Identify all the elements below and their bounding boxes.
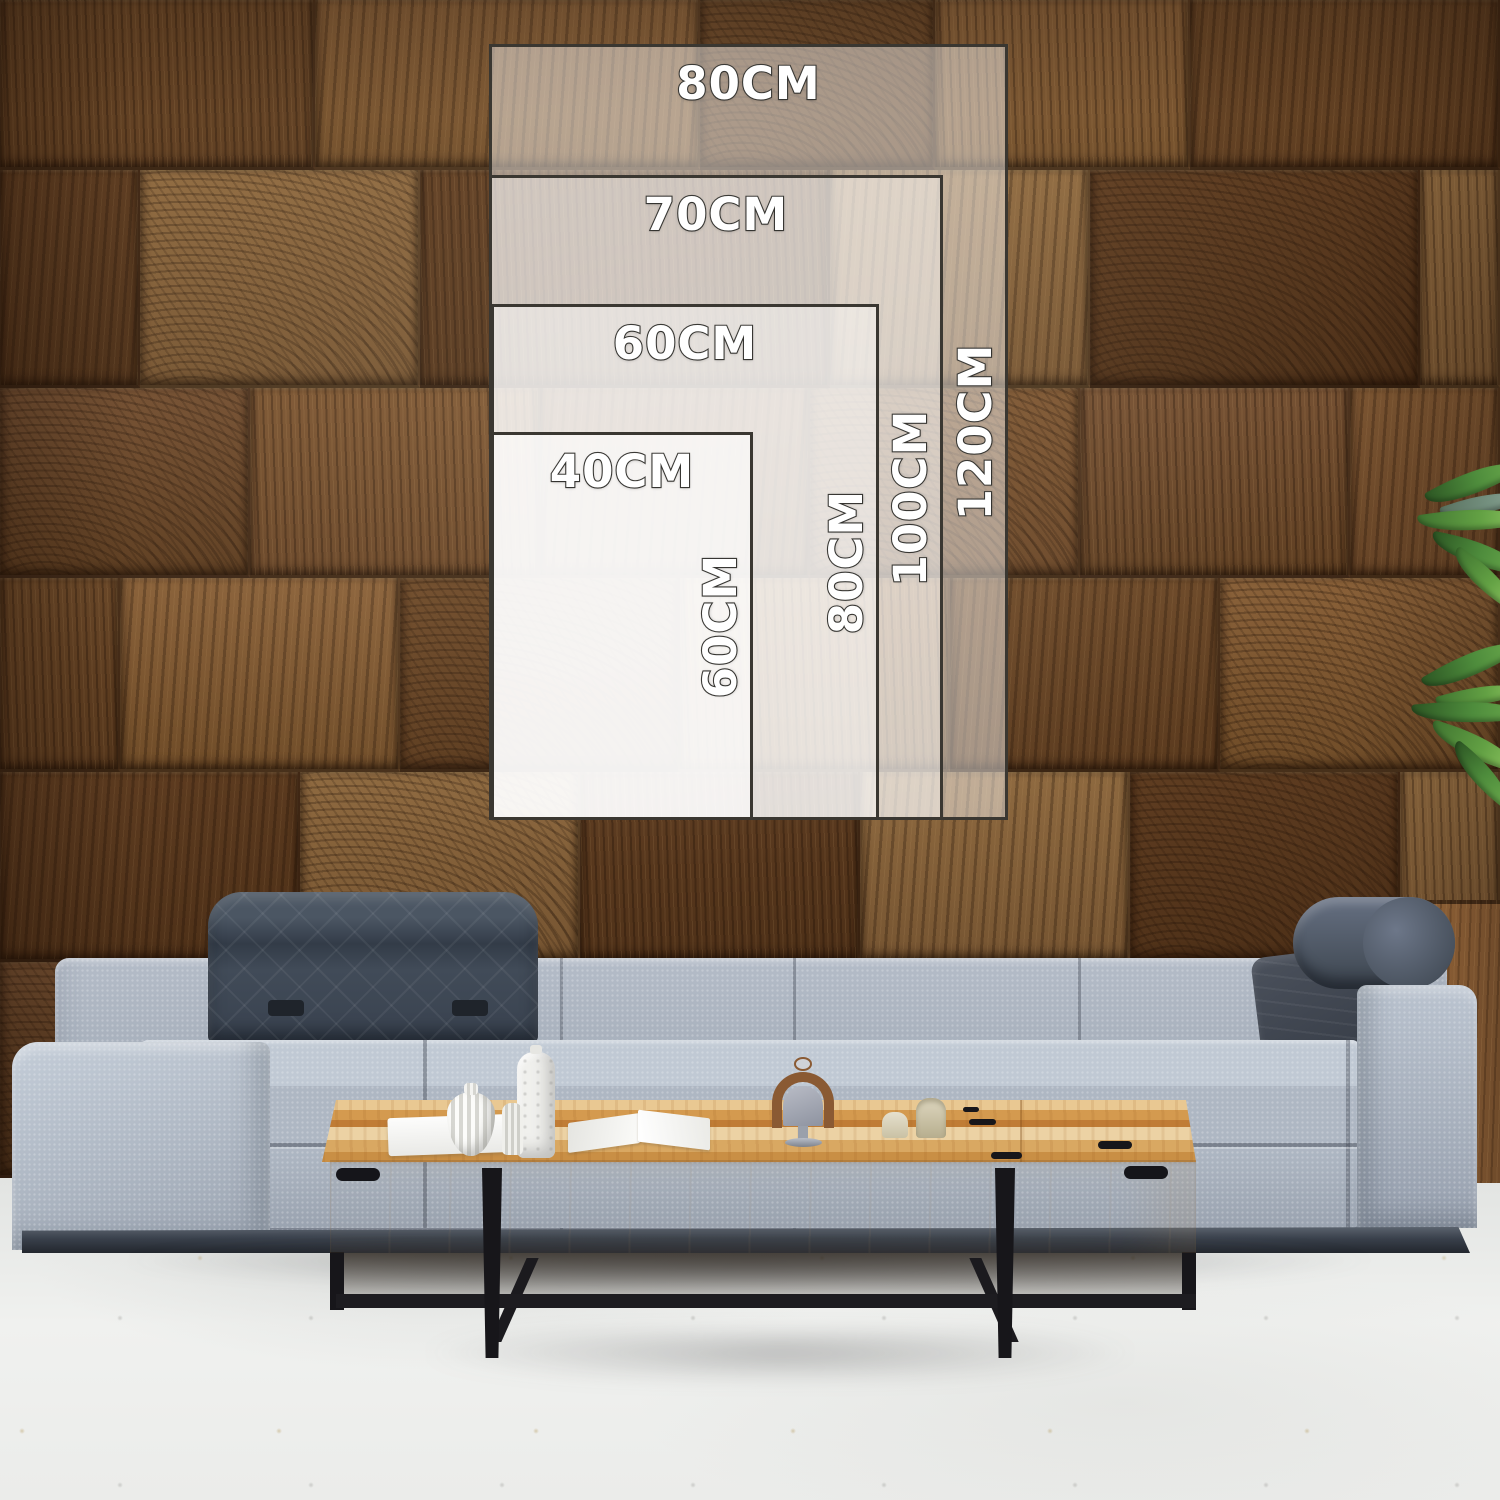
decor-arch-ornament-frame <box>772 1072 834 1128</box>
table-floor-shadow <box>330 1332 1230 1378</box>
decor-small-vase <box>502 1103 523 1155</box>
table-handle-left <box>336 1168 380 1181</box>
table-top-slot <box>969 1119 996 1125</box>
table-front-panel <box>330 1160 1196 1253</box>
table-top-slot <box>991 1152 1022 1159</box>
table-leg-rail <box>336 1294 1196 1308</box>
table-handle-right <box>1124 1166 1168 1179</box>
decor-candle-short <box>882 1112 908 1138</box>
table-top-slot <box>963 1107 979 1112</box>
living-room-size-guide-scene: 80CM 120CM 70CM 100CM 60CM 80CM 40CM 60C… <box>0 0 1500 1500</box>
decor-arch-ornament-base <box>785 1138 822 1147</box>
decor-candle-tall <box>916 1098 946 1138</box>
decor-arch-ornament-knob <box>794 1057 812 1071</box>
coffee-table <box>0 0 1500 1500</box>
table-top-slot <box>1098 1141 1132 1149</box>
